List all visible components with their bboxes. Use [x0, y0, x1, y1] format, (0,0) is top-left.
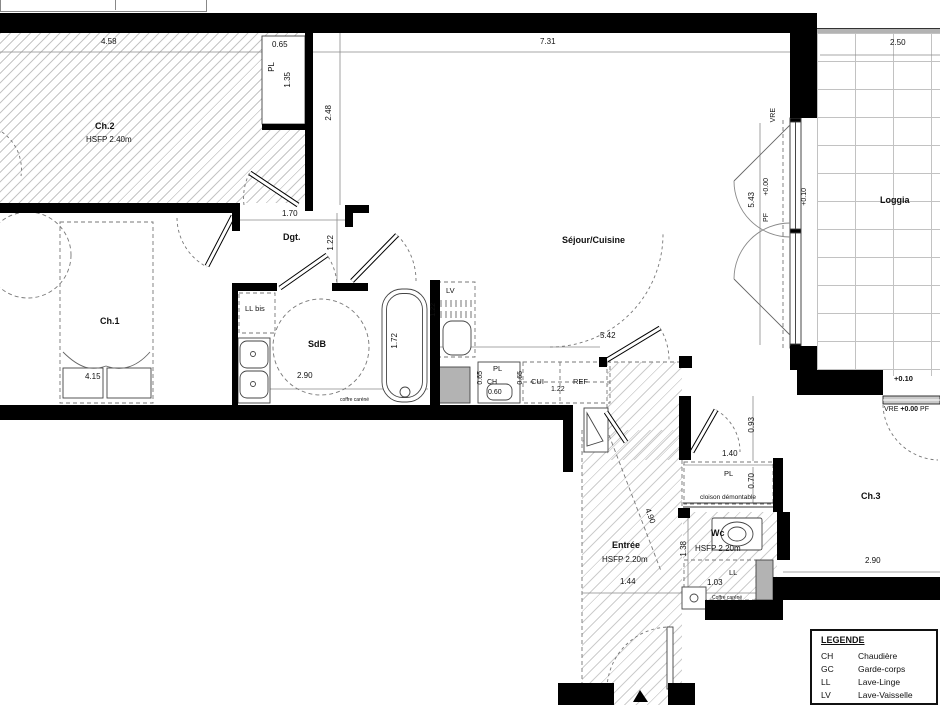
dim-lv-width: 1.22 — [430, 303, 437, 317]
ceiling-note-ch2: HSFP 2.40m — [86, 136, 132, 144]
ceiling-note-entree: HSFP 2.20m — [602, 556, 648, 564]
floor-plan: Ch.2 HSFP 2.40m 4.58 0.65 PL 1.35 7.31 2… — [0, 0, 940, 705]
legend-abbr-ll: LL — [821, 676, 858, 689]
dim-wc-depth: 1.38 — [680, 541, 688, 557]
fixture-label-ll: LL — [729, 569, 737, 577]
room-label-wc: Wc — [711, 529, 725, 538]
wall-segment — [430, 280, 440, 413]
wall-segment — [232, 203, 240, 231]
room-label-entree: Entrée — [612, 541, 640, 550]
level-label-000-left: +0.00 — [763, 178, 770, 196]
fixture-label-pl-kitchen: PL — [493, 365, 502, 373]
room-label-loggia: Loggia — [880, 196, 910, 205]
level-label-000-right: +0.00 — [900, 406, 918, 413]
legend-row-lv: LV Lave-Vaisselle — [821, 689, 936, 702]
note-coffre-sdb: coffre caréné — [340, 398, 369, 403]
room-label-sejour: Séjour/Cuisine — [562, 236, 625, 245]
dim-sejour-depth: 2.48 — [325, 105, 333, 121]
fixture-label-ref: REF — [573, 378, 588, 386]
fixture-label-cui: CUI — [531, 378, 544, 386]
wall-segment — [558, 683, 614, 705]
room-label-ch3: Ch.3 — [861, 492, 881, 501]
note-cloison: cloison démontable — [700, 495, 756, 502]
wall-segment — [0, 203, 240, 213]
dim-ch2-pl-depth: 1.35 — [284, 72, 292, 88]
wall-segment — [0, 405, 573, 420]
level-label-vre-left: VRE — [770, 108, 777, 122]
dim-ch1-width: 4.15 — [85, 373, 101, 381]
dim-wc-width: 1.03 — [707, 579, 723, 587]
level-label-010-left: +0.10 — [801, 188, 808, 206]
room-label-ch2: Ch.2 — [95, 122, 115, 131]
dim-kitchen-pl-depth: 0.65 — [477, 371, 484, 385]
legend-label-ch: Chaudière — [858, 650, 897, 663]
wall-segment — [679, 396, 691, 460]
dim-sejour-length: 5.42 — [600, 332, 616, 340]
fixture-label-pl-wc: PL — [724, 470, 733, 478]
room-label-dgt: Dgt. — [283, 233, 301, 242]
fixture-label-ll-bis: LL bis — [245, 305, 265, 313]
dim-kitchen-ch-width: 0.60 — [488, 389, 502, 396]
legend-row-ll: LL Lave-Linge — [821, 676, 936, 689]
legend-label-ll: Lave-Linge — [858, 676, 900, 689]
wall-segment — [262, 124, 305, 130]
wall-segment — [599, 357, 607, 367]
level-label-pf-right: PF — [920, 406, 929, 413]
level-label-pf-left: PF — [763, 213, 770, 222]
wall-segment — [345, 205, 353, 227]
wall-segment — [668, 683, 695, 705]
legend-title: LEGENDE — [821, 635, 936, 645]
entrance-arrow — [633, 690, 648, 702]
wall-segment — [705, 600, 783, 620]
dim-sejour-width: 7.31 — [540, 38, 556, 46]
dim-dgt-depth: 1.22 — [327, 235, 335, 251]
fixture-label-pl-ch2: PL — [268, 62, 276, 72]
wall-segment — [777, 512, 790, 560]
level-label-010-right: +0.10 — [894, 375, 913, 383]
dim-sdb-width: 2.90 — [297, 372, 313, 380]
fixture-label-lv: LV — [446, 287, 455, 295]
dim-ch2-width: 4.58 — [101, 38, 117, 46]
wall-segment — [232, 291, 238, 405]
dim-wc-pl-depth: 0.70 — [748, 473, 756, 489]
wall-segment — [563, 415, 573, 472]
wall-segment — [773, 458, 783, 512]
wall-segment — [679, 356, 692, 368]
wall-segment — [232, 283, 277, 291]
dim-hall-depth: 0.93 — [748, 417, 756, 433]
wall-segment — [790, 346, 817, 370]
wall-segment — [332, 283, 368, 291]
level-label-vre-right: VRE — [884, 406, 898, 413]
wall-segment — [678, 508, 690, 518]
legend-abbr-lv: LV — [821, 689, 858, 702]
dim-dgt-width: 1.70 — [282, 210, 298, 218]
dim-loggia-length: 5.43 — [748, 192, 756, 208]
note-coffre-wc: Coffre caréné — [712, 596, 742, 601]
legend-row-gc: GC Garde-corps — [821, 663, 936, 676]
legend-abbr-gc: GC — [821, 663, 858, 676]
legend-box: LEGENDE CH Chaudière GC Garde-corps LL L… — [810, 629, 938, 705]
dim-entree-width: 1.44 — [620, 578, 636, 586]
legend-label-lv: Lave-Vaisselle — [858, 689, 913, 702]
wall-segment — [773, 577, 940, 600]
dim-kitchen-cui-depth: 0.65 — [517, 371, 524, 385]
dim-loggia-width: 2.50 — [890, 39, 906, 47]
legend-abbr-ch: CH — [821, 650, 858, 663]
fixture-label-ch: CH — [487, 379, 497, 386]
wall-segment — [0, 13, 817, 33]
room-label-sdb: SdB — [308, 340, 326, 349]
dim-wc-pl-width: 1.40 — [722, 450, 738, 458]
wall-segment — [797, 370, 883, 395]
wall-segment — [790, 33, 817, 118]
legend-row-ch: CH Chaudière — [821, 650, 936, 663]
dim-ch2-pl-width: 0.65 — [272, 41, 288, 49]
ceiling-note-wc: HSFP 2.20m — [695, 545, 741, 553]
dim-ch3-width: 2.90 — [865, 557, 881, 565]
dim-sdb-bath: 1.72 — [391, 333, 399, 349]
legend-label-gc: Garde-corps — [858, 663, 905, 676]
wall-segment — [305, 33, 313, 211]
level-row-right: VRE +0.00 PF — [884, 406, 929, 413]
dim-kitchen-cui-width: 1.22 — [551, 386, 565, 393]
room-label-ch1: Ch.1 — [100, 317, 120, 326]
